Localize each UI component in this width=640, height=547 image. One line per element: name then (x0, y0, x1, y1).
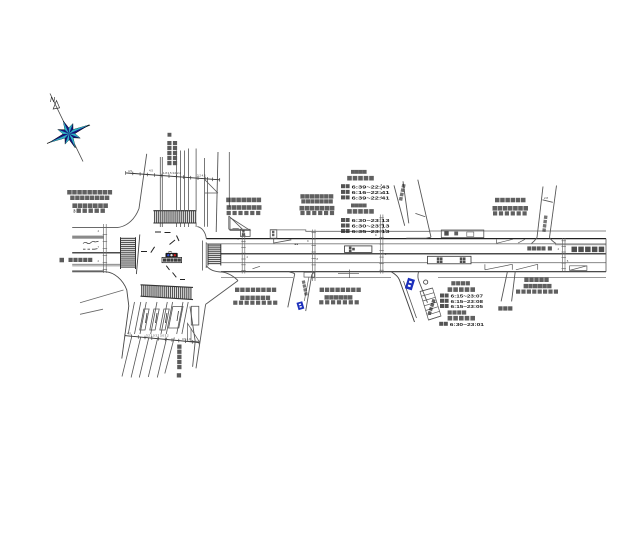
svg-text:4.5: 4.5 (149, 169, 153, 173)
svg-text:6:30~23:13: 6:30~23:13 (352, 218, 391, 223)
svg-text:6:39~22:43: 6:39~22:43 (352, 184, 391, 189)
svg-text:6:30~23:01: 6:30~23:01 (450, 322, 485, 327)
svg-text:2.8: 2.8 (544, 196, 548, 200)
svg-text:4.5: 4.5 (127, 332, 131, 336)
svg-text:6:39~22:41: 6:39~22:41 (352, 196, 391, 201)
svg-text:6:35~23:13: 6:35~23:13 (352, 229, 391, 234)
svg-text:6:15~23:07: 6:15~23:07 (451, 294, 484, 299)
svg-text:3.5 4.0: 3.5 4.0 (182, 337, 191, 341)
svg-text:6:30~23:13: 6:30~23:13 (352, 224, 391, 229)
svg-text:3.2 4.5: 3.2 4.5 (197, 174, 206, 178)
svg-text:3.2 3.0 3.2 3.0 3.2: 3.2 3.0 3.2 3.0 3.2 (146, 334, 169, 338)
svg-text:1.8 2.5 3.0 2.2: 1.8 2.5 3.0 2.2 (163, 171, 181, 175)
svg-text:4.5: 4.5 (128, 169, 132, 173)
svg-text:6:15~23:05: 6:15~23:05 (451, 304, 484, 309)
svg-text:6:16~22:41: 6:16~22:41 (352, 190, 391, 195)
svg-text:3: 3 (73, 208, 76, 213)
